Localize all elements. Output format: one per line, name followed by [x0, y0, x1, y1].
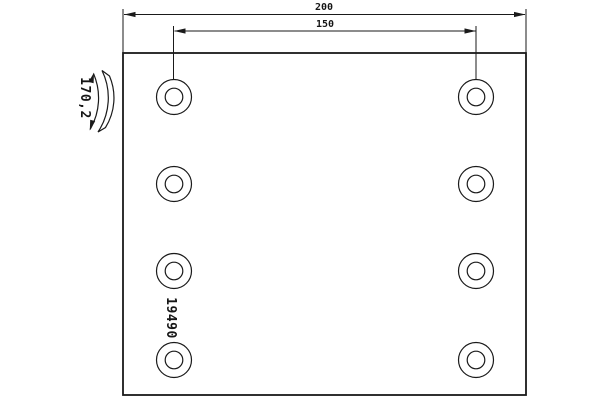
technical-drawing-canvas: 200 150 170,2 19490 [0, 0, 600, 400]
dimension-label-arc-length: 170,2 [77, 74, 91, 122]
lining-curvature-icon [98, 71, 114, 133]
part-number-label: 19490 [163, 291, 177, 345]
dimension-label-hole-spacing: 150 [174, 19, 476, 30]
hole [157, 167, 192, 202]
hole [459, 254, 494, 289]
hole [157, 254, 192, 289]
hole-grid [157, 80, 494, 378]
drawing-geometry [0, 0, 600, 400]
hole [157, 80, 192, 115]
stroke-group [90, 9, 526, 395]
plate-outline [123, 53, 526, 395]
hole [459, 343, 494, 378]
dimension-label-overall-width: 200 [124, 2, 524, 13]
hole [157, 343, 192, 378]
hole [459, 80, 494, 115]
hole [459, 167, 494, 202]
